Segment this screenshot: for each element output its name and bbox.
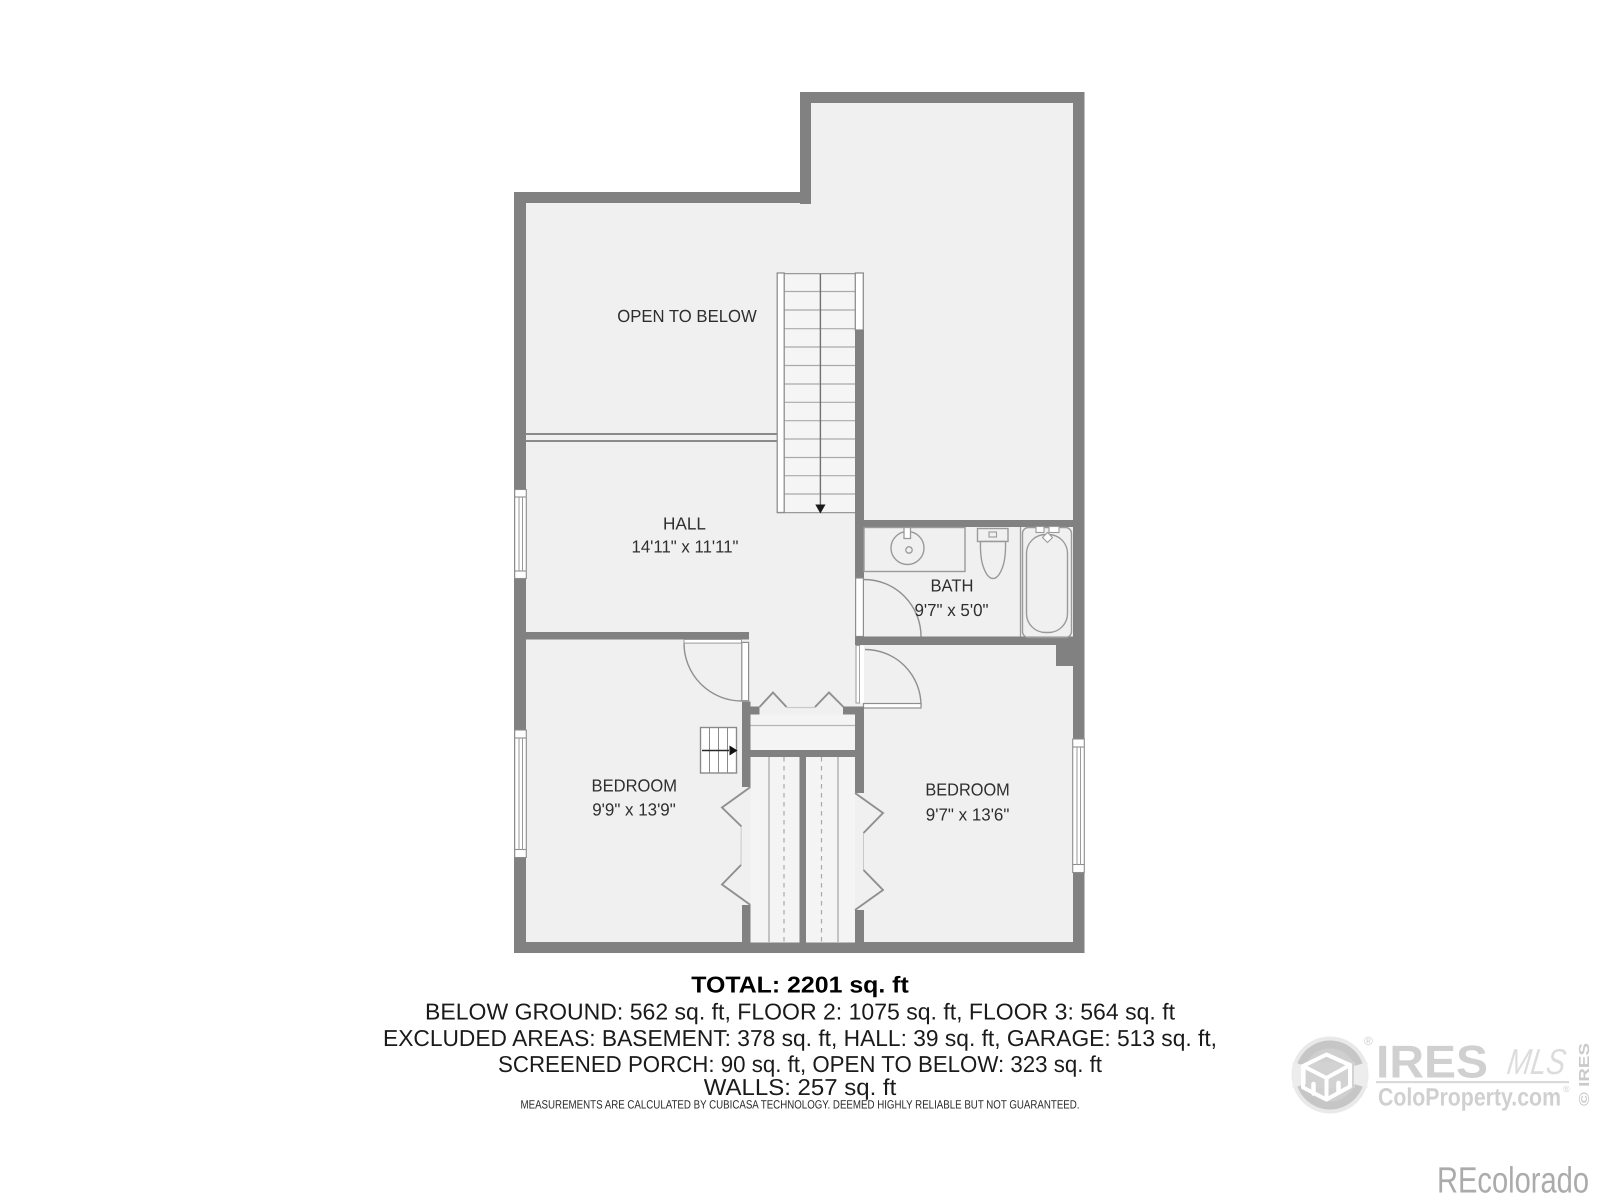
svg-text:OPEN TO BELOW: OPEN TO BELOW [617, 306, 757, 326]
svg-text:9'7" x 5'0": 9'7" x 5'0" [915, 600, 989, 620]
svg-text:TOTAL: 2201 sq. ft: TOTAL: 2201 sq. ft [691, 972, 909, 998]
svg-text:9'9" x 13'9": 9'9" x 13'9" [592, 800, 676, 820]
svg-text:BEDROOM: BEDROOM [925, 779, 1009, 799]
svg-text:IRES: IRES [1376, 1036, 1488, 1088]
svg-text:®: ® [1364, 1034, 1373, 1048]
svg-text:14'11" x 11'11": 14'11" x 11'11" [632, 537, 739, 557]
svg-text:© IRES: © IRES [1577, 1043, 1593, 1106]
svg-text:WALLS: 257 sq. ft: WALLS: 257 sq. ft [704, 1074, 897, 1100]
svg-text:HALL: HALL [663, 514, 706, 534]
svg-text:BELOW GROUND: 562 sq. ft, FLOO: BELOW GROUND: 562 sq. ft, FLOOR 2: 1075 … [425, 999, 1176, 1025]
svg-text:9'7" x 13'6": 9'7" x 13'6" [926, 804, 1010, 824]
svg-text:®: ® [1563, 1084, 1570, 1094]
svg-text:REcolorado: REcolorado [1437, 1160, 1589, 1200]
svg-text:BEDROOM: BEDROOM [592, 776, 678, 796]
svg-text:BATH: BATH [931, 576, 974, 596]
svg-text:MEASUREMENTS ARE CALCULATED BY: MEASUREMENTS ARE CALCULATED BY CUBICASA … [521, 1098, 1080, 1112]
svg-text:MLS: MLS [1505, 1041, 1569, 1082]
svg-text:ColoProperty.com: ColoProperty.com [1378, 1084, 1561, 1112]
svg-text:EXCLUDED AREAS: BASEMENT: 378: EXCLUDED AREAS: BASEMENT: 378 sq. ft, HA… [383, 1025, 1217, 1051]
